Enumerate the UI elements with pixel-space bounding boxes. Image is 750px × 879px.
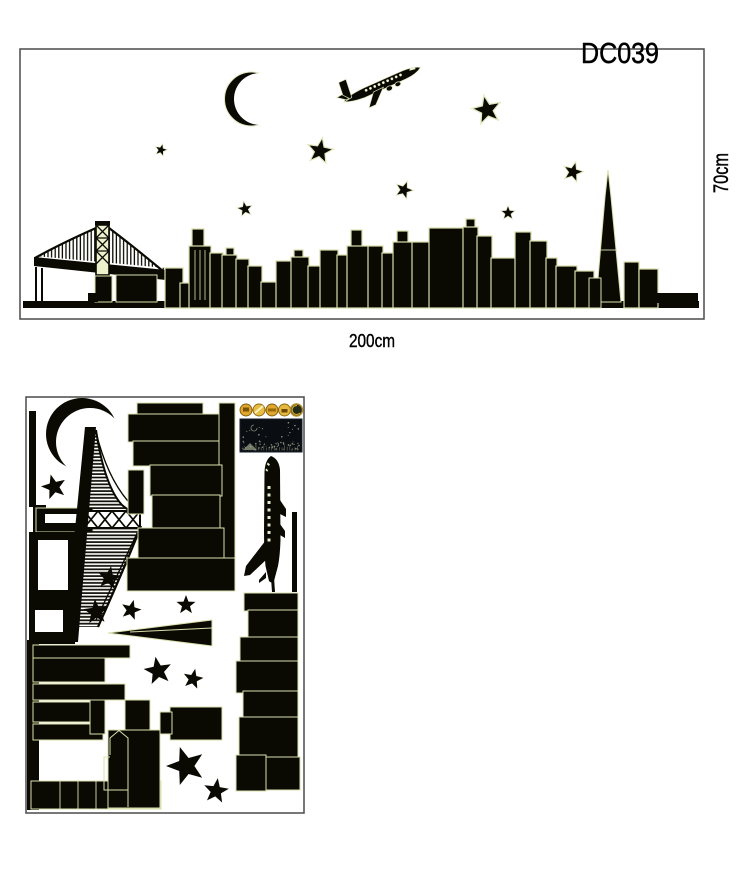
- svg-text:200cm: 200cm: [349, 331, 395, 351]
- svg-text:DC039: DC039: [581, 38, 659, 70]
- svg-text:70cm: 70cm: [710, 153, 733, 193]
